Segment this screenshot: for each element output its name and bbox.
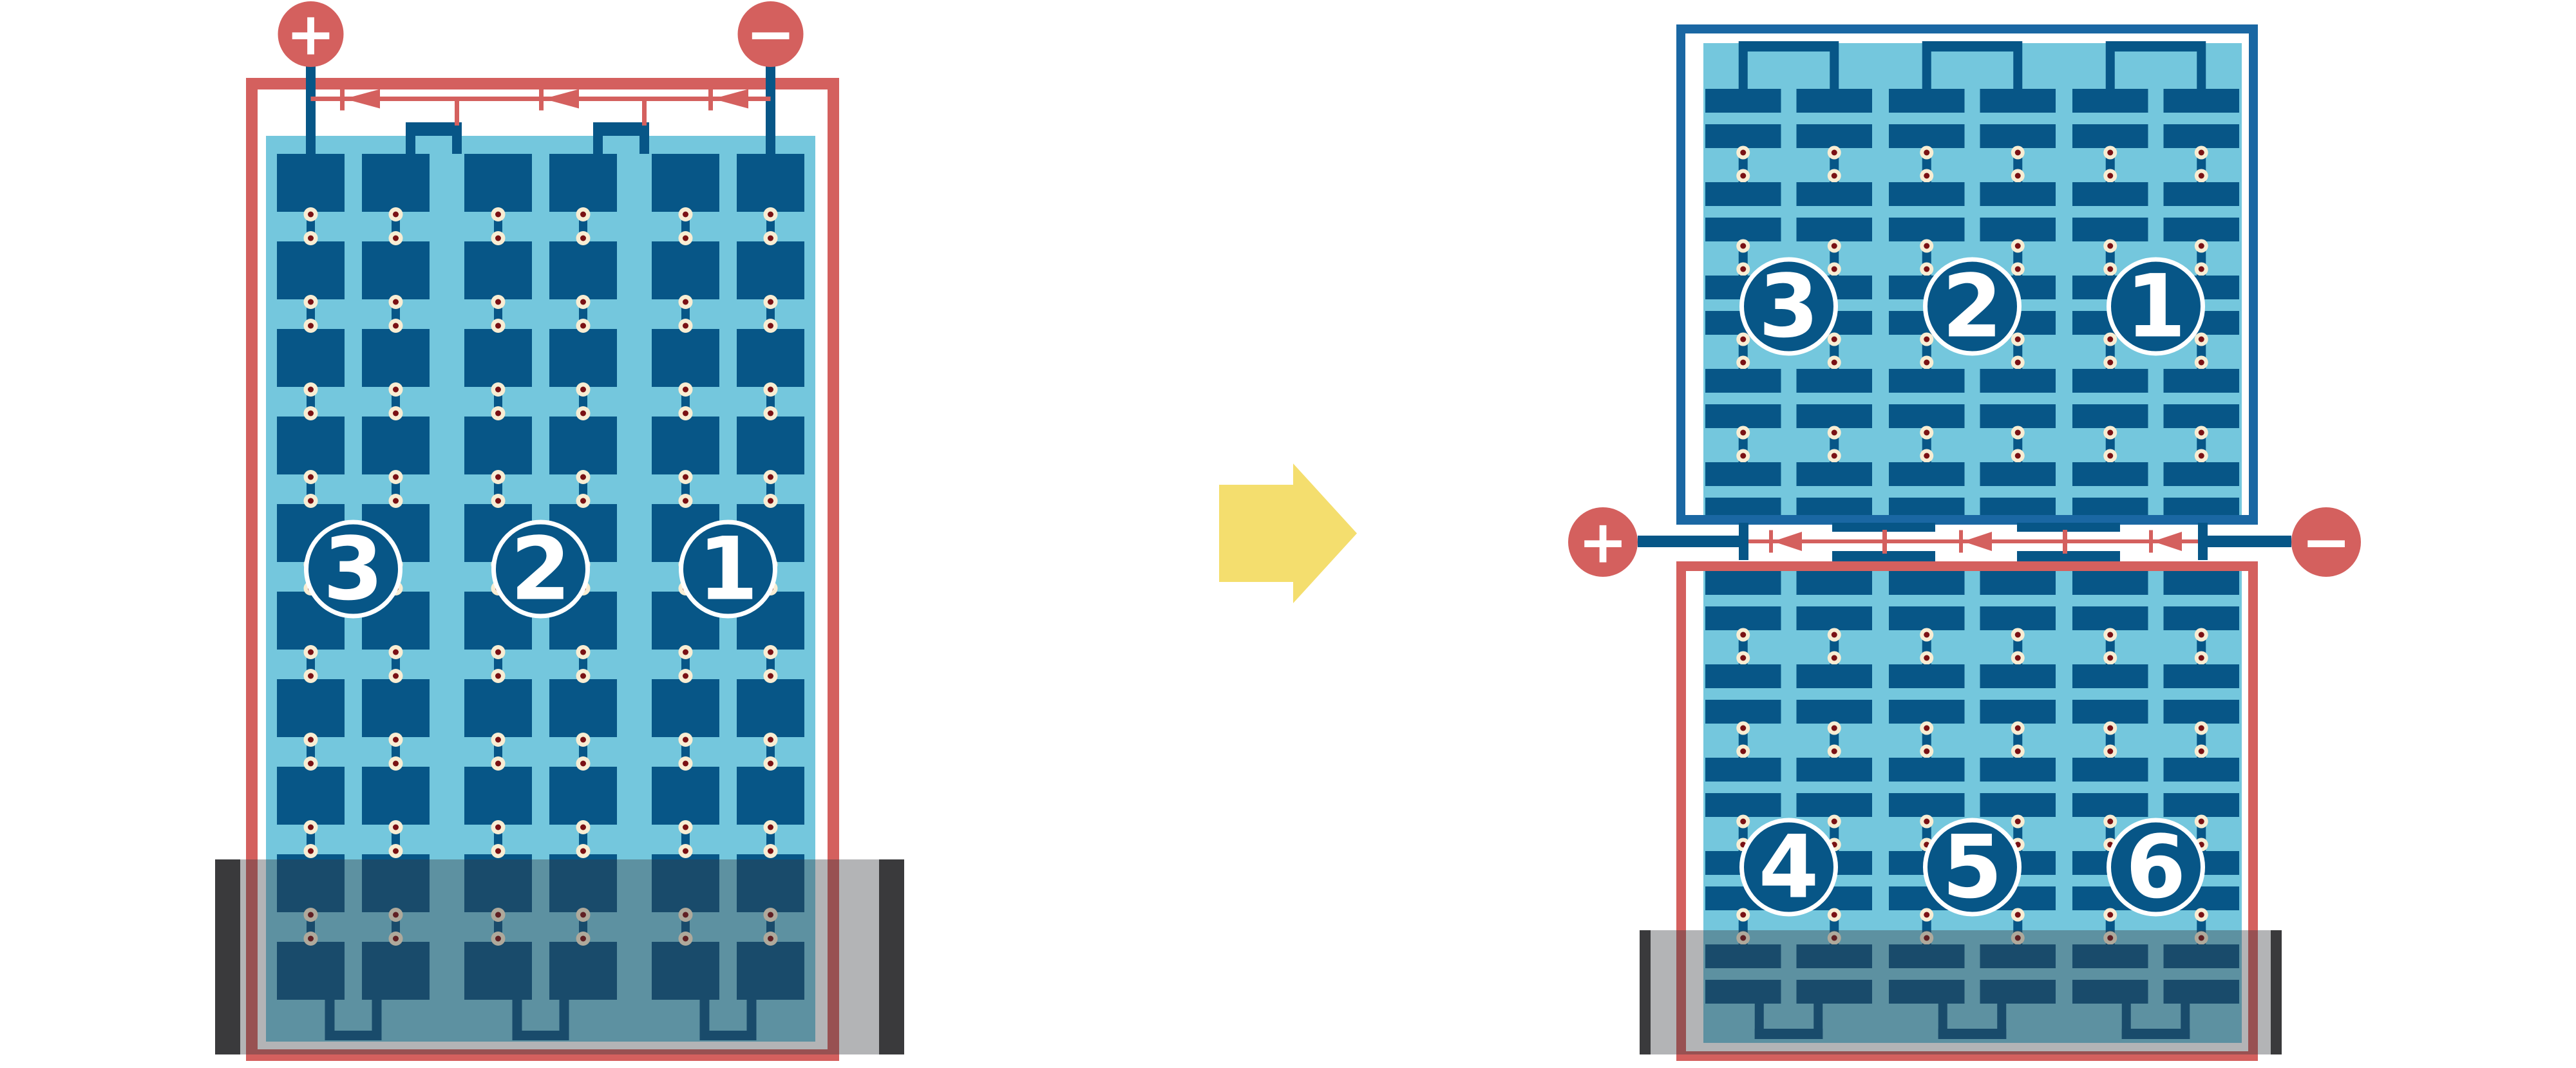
solar-cell-half: [1705, 793, 1781, 817]
solder-dot-core: [1924, 267, 1929, 272]
solar-cell-half: [1705, 124, 1781, 148]
solar-cell-half: [1705, 664, 1781, 688]
solder-dot-core: [2015, 150, 2021, 156]
solder-dot-core: [308, 387, 314, 393]
solar-cell: [464, 329, 532, 387]
bypass-diode: [713, 89, 748, 109]
solder-dot-core: [2107, 430, 2113, 436]
solder-dot-core: [580, 474, 586, 480]
interconnect-tab-top: [2017, 523, 2120, 532]
solar-cell: [277, 417, 345, 474]
diode-cathode-bar: [708, 88, 713, 111]
solar-cell-half: [2164, 571, 2240, 595]
solder-dot-core: [1832, 267, 1837, 272]
substring-label: 4: [1759, 817, 1819, 918]
solar-cell-half: [1797, 664, 1873, 688]
solder-dot-core: [393, 299, 399, 305]
solder-dot-core: [393, 650, 399, 655]
solar-cell: [737, 329, 804, 387]
solder-dot-core: [2107, 655, 2113, 661]
solder-dot-core: [580, 236, 586, 241]
solar-cell-half: [1980, 571, 2056, 595]
shadow-overlay: [1640, 930, 2282, 1054]
solar-cell-half: [2072, 182, 2148, 206]
solar-cell-half: [2164, 404, 2240, 428]
solar-cell: [737, 241, 804, 299]
solder-dot-core: [683, 212, 688, 218]
solder-dot-core: [2107, 726, 2113, 731]
solder-dot-core: [1832, 430, 1837, 436]
solder-dot-core: [1832, 819, 1837, 825]
solder-dot-core: [580, 761, 586, 767]
solder-dot-core: [768, 323, 773, 329]
staple-leg: [2013, 52, 2022, 89]
solder-dot-core: [308, 212, 314, 218]
substring-label: 5: [1942, 817, 2003, 918]
solder-dot-core: [683, 299, 688, 305]
solder-dot-core: [683, 650, 688, 655]
solar-cell: [277, 679, 345, 737]
solar-cell-half: [1797, 462, 1873, 486]
solar-cell-half: [2072, 124, 2148, 148]
substring-label: 3: [323, 519, 384, 620]
solder-dot-core: [495, 673, 501, 679]
solar-cell-half: [1980, 369, 2056, 393]
solar-cell-half: [1980, 404, 2056, 428]
solar-cell-half: [1797, 571, 1873, 595]
solder-dot-core: [393, 737, 399, 743]
solder-dot-core: [495, 236, 501, 241]
solder-dot-core: [308, 323, 314, 329]
negative-terminal-sign: −: [746, 0, 795, 69]
solar-cell: [652, 329, 719, 387]
solder-dot-core: [1924, 749, 1929, 754]
solder-dot-core: [2107, 150, 2113, 156]
solder-dot-core: [580, 387, 586, 393]
solder-dot-core: [495, 761, 501, 767]
solder-dot-core: [2107, 267, 2113, 272]
solder-dot-core: [2199, 430, 2204, 436]
solder-dot-core: [2015, 819, 2021, 825]
solder-dot-core: [2015, 173, 2021, 179]
solder-dot-core: [768, 474, 773, 480]
top-bridge-staple: [2106, 41, 2206, 52]
staple-leg: [639, 122, 649, 154]
solar-cell-half: [1797, 182, 1873, 206]
solar-cell: [464, 767, 532, 825]
solder-dot-core: [495, 825, 501, 830]
solder-dot-core: [1832, 150, 1837, 156]
solder-dot-core: [2199, 150, 2204, 156]
solder-dot-core: [1924, 726, 1929, 731]
solder-dot-core: [2015, 430, 2021, 436]
junction-drop-wire: [642, 97, 647, 126]
solar-cell: [737, 154, 804, 212]
positive-terminal-sign: +: [1578, 508, 1627, 577]
solder-dot-core: [2015, 453, 2021, 459]
solder-dot-core: [393, 825, 399, 830]
solder-dot-core: [2015, 912, 2021, 918]
staple-leg: [1830, 52, 1839, 89]
solar-cell-half: [1889, 462, 1965, 486]
solder-dot-core: [1924, 173, 1929, 179]
solar-cell: [362, 679, 430, 737]
solar-cell-half: [1889, 404, 1965, 428]
solar-cell-half: [1889, 124, 1965, 148]
top-bridge-staple: [1922, 41, 2023, 52]
solder-dot-core: [2199, 749, 2204, 754]
diode-cathode-bar: [340, 88, 345, 111]
solder-dot-core: [393, 498, 399, 504]
top-bridge-staple: [1739, 41, 1839, 52]
solder-dot-core: [2199, 267, 2204, 272]
staple-leg: [1739, 52, 1748, 89]
solar-cell-half: [2164, 758, 2240, 782]
solder-dot-core: [683, 387, 688, 393]
solder-dot-core: [683, 825, 688, 830]
solder-dot-core: [2015, 360, 2021, 366]
bypass-diode: [1773, 532, 1802, 551]
solder-dot-core: [308, 411, 314, 417]
solar-cell: [652, 767, 719, 825]
solar-cell: [277, 154, 345, 212]
solar-cell-half: [2164, 462, 2240, 486]
solar-cell-half: [1797, 124, 1873, 148]
solar-cell-half: [2072, 700, 2148, 724]
negative-terminal-lead: [2208, 536, 2291, 547]
solder-dot-core: [308, 474, 314, 480]
solder-dot-core: [2199, 819, 2204, 825]
solar-cell: [549, 679, 617, 737]
solder-dot-core: [308, 737, 314, 743]
solder-dot-core: [1832, 912, 1837, 918]
solar-cell-half: [1705, 462, 1781, 486]
solar-cell-half: [2164, 606, 2240, 630]
solder-dot-core: [1740, 655, 1746, 661]
diode-cathode-bar: [1959, 530, 1963, 553]
solder-dot-core: [1740, 749, 1746, 754]
solder-dot-core: [2199, 655, 2204, 661]
solder-dot-core: [2015, 337, 2021, 342]
solar-cell: [652, 679, 719, 737]
solder-dot-core: [683, 236, 688, 241]
solder-dot-core: [2107, 453, 2113, 459]
diagram-canvas: +−321321+−456: [0, 0, 2576, 1068]
solder-dot-core: [393, 387, 399, 393]
bypass-diode: [544, 89, 579, 109]
solar-cell-half: [2072, 758, 2148, 782]
solder-dot-core: [2015, 243, 2021, 249]
solder-dot-core: [1924, 632, 1929, 638]
solder-dot-core: [308, 825, 314, 830]
solar-cell-half: [1980, 606, 2056, 630]
solar-cell-half: [1889, 664, 1965, 688]
solar-cell-half: [1797, 369, 1873, 393]
solder-dot-core: [495, 411, 501, 417]
solar-cell-half: [1797, 89, 1873, 113]
solar-cell-half: [1980, 758, 2056, 782]
solar-cell: [737, 767, 804, 825]
solar-cell: [464, 679, 532, 737]
solar-cell: [737, 679, 804, 737]
solar-cell-half: [2072, 369, 2148, 393]
solder-dot-core: [768, 673, 773, 679]
positive-terminal-lead: [306, 64, 316, 154]
right-bottom-module: 456: [1640, 567, 2282, 1056]
solar-cell-half: [2072, 571, 2148, 595]
solder-dot-core: [2015, 632, 2021, 638]
solder-dot-core: [683, 498, 688, 504]
solar-cell-half: [2164, 218, 2240, 241]
solder-dot-core: [768, 236, 773, 241]
solar-cell-half: [2164, 369, 2240, 393]
solder-dot-core: [768, 212, 773, 218]
solder-dot-core: [495, 848, 501, 854]
solar-cell-half: [1980, 793, 2056, 817]
solder-dot-core: [1924, 360, 1929, 366]
diode-cathode-bar: [2149, 530, 2153, 553]
solder-dot-core: [580, 212, 586, 218]
substring-label: 2: [511, 519, 571, 620]
solar-cell: [362, 154, 430, 212]
bus-node-left: [1739, 523, 1748, 560]
solder-dot-core: [2107, 632, 2113, 638]
solder-dot-core: [308, 761, 314, 767]
solder-dot-core: [768, 761, 773, 767]
solar-cell: [464, 417, 532, 474]
solder-dot-core: [1924, 819, 1929, 825]
solder-dot-core: [1740, 150, 1746, 156]
staple-leg: [452, 122, 462, 154]
solder-dot-core: [2199, 360, 2204, 366]
solar-cell-half: [1889, 182, 1965, 206]
solar-cell-half: [1705, 758, 1781, 782]
solder-dot-core: [393, 761, 399, 767]
shadow-overlay: [215, 859, 904, 1054]
solder-dot-core: [580, 825, 586, 830]
solder-dot-core: [2199, 453, 2204, 459]
solder-dot-core: [1832, 749, 1837, 754]
solder-dot-core: [2199, 912, 2204, 918]
solar-cell: [549, 154, 617, 212]
negative-terminal-lead: [766, 64, 775, 154]
solar-cell: [549, 329, 617, 387]
solder-dot-core: [1832, 632, 1837, 638]
solar-cell-half: [2072, 89, 2148, 113]
solar-cell-half: [2164, 793, 2240, 817]
solar-cell-half: [1889, 218, 1965, 241]
solder-dot-core: [495, 650, 501, 655]
bypass-diode: [1963, 532, 1992, 551]
solder-dot-core: [1740, 267, 1746, 272]
solar-cell-half: [1705, 369, 1781, 393]
solder-dot-core: [2107, 243, 2113, 249]
solar-cell: [737, 417, 804, 474]
solder-dot-core: [1832, 337, 1837, 342]
solder-dot-core: [308, 236, 314, 241]
substring-label: 2: [1942, 256, 2003, 357]
solar-cell-half: [2072, 606, 2148, 630]
solar-cell: [362, 241, 430, 299]
solar-cell-half: [1980, 182, 2056, 206]
shadow-cap-right: [879, 859, 904, 1054]
solder-dot-core: [580, 673, 586, 679]
solar-cell-half: [1889, 700, 1965, 724]
staple-leg: [2197, 52, 2206, 89]
positive-terminal-lead: [1638, 536, 1739, 547]
solder-dot-core: [1740, 337, 1746, 342]
solder-dot-core: [393, 474, 399, 480]
solar-cell: [277, 767, 345, 825]
solder-dot-core: [2199, 173, 2204, 179]
solder-dot-core: [683, 848, 688, 854]
solder-dot-core: [1740, 430, 1746, 436]
solar-cell-half: [1797, 606, 1873, 630]
solder-dot-core: [1924, 430, 1929, 436]
solder-dot-core: [2107, 912, 2113, 918]
solder-dot-core: [495, 387, 501, 393]
solder-dot-core: [1740, 243, 1746, 249]
solar-cell: [652, 241, 719, 299]
solder-dot-core: [1924, 655, 1929, 661]
solder-dot-core: [1924, 150, 1929, 156]
solder-dot-core: [1740, 819, 1746, 825]
solder-dot-core: [2015, 267, 2021, 272]
solder-dot-core: [2107, 173, 2113, 179]
solder-dot-core: [1740, 726, 1746, 731]
solder-dot-core: [393, 673, 399, 679]
solar-cell-half: [1889, 793, 1965, 817]
bypass-diode: [345, 89, 380, 109]
substring-label: 6: [2126, 817, 2186, 918]
solder-dot-core: [768, 387, 773, 393]
solar-cell-half: [2164, 124, 2240, 148]
staple-leg: [2106, 52, 2115, 89]
solar-cell: [362, 417, 430, 474]
solar-cell-half: [1980, 89, 2056, 113]
solar-cell: [464, 154, 532, 212]
solder-dot-core: [683, 323, 688, 329]
solder-dot-core: [308, 673, 314, 679]
solder-dot-core: [393, 848, 399, 854]
solar-cell-half: [2164, 700, 2240, 724]
solar-cell-half: [1797, 404, 1873, 428]
solar-cell-half: [1797, 793, 1873, 817]
solder-dot-core: [1832, 360, 1837, 366]
solder-dot-core: [1740, 360, 1746, 366]
solder-dot-core: [580, 848, 586, 854]
solar-cell-half: [2072, 793, 2148, 817]
solder-dot-core: [393, 236, 399, 241]
negative-terminal-sign: −: [2301, 508, 2351, 577]
staple-leg: [1922, 52, 1931, 89]
solar-cell-half: [1980, 462, 2056, 486]
substring-label: 1: [2126, 256, 2186, 357]
solder-dot-core: [393, 212, 399, 218]
solder-dot-core: [2199, 726, 2204, 731]
solder-dot-core: [768, 825, 773, 830]
solar-cell: [549, 417, 617, 474]
solder-dot-core: [308, 299, 314, 305]
solder-dot-core: [393, 323, 399, 329]
diode-cathode-bar: [1769, 530, 1773, 553]
solder-dot-core: [1832, 655, 1837, 661]
solar-cell-half: [1705, 218, 1781, 241]
solder-dot-core: [768, 411, 773, 417]
solar-cell-half: [1980, 124, 2056, 148]
solder-dot-core: [580, 323, 586, 329]
positive-terminal-sign: +: [286, 0, 336, 69]
solder-dot-core: [1740, 453, 1746, 459]
solar-cell-half: [1797, 758, 1873, 782]
bypass-diode: [2153, 532, 2182, 551]
solder-dot-core: [1832, 173, 1837, 179]
solar-cell: [362, 767, 430, 825]
solder-dot-core: [2199, 632, 2204, 638]
solder-dot-core: [1740, 173, 1746, 179]
solder-dot-core: [308, 650, 314, 655]
solar-cell: [464, 241, 532, 299]
solder-dot-core: [768, 299, 773, 305]
solar-cell-half: [1889, 571, 1965, 595]
solder-dot-core: [495, 323, 501, 329]
solder-dot-core: [768, 848, 773, 854]
solar-cell-half: [1889, 369, 1965, 393]
solar-cell: [277, 241, 345, 299]
solar-cell: [362, 329, 430, 387]
solder-dot-core: [1924, 337, 1929, 342]
solder-dot-core: [683, 761, 688, 767]
solder-dot-core: [2199, 337, 2204, 342]
solder-dot-core: [308, 848, 314, 854]
solar-cell-half: [2072, 404, 2148, 428]
solder-dot-core: [1832, 453, 1837, 459]
solder-dot-core: [1832, 726, 1837, 731]
solar-cell-half: [1705, 89, 1781, 113]
solder-dot-core: [495, 212, 501, 218]
solder-dot-core: [2107, 749, 2113, 754]
staple-leg: [593, 122, 603, 154]
solar-cell-half: [2164, 182, 2240, 206]
solar-cell: [277, 329, 345, 387]
solder-dot-core: [308, 498, 314, 504]
solar-cell-half: [1980, 218, 2056, 241]
solar-cell-half: [1980, 700, 2056, 724]
solar-cell: [652, 154, 719, 212]
shadow-cap-left: [1640, 930, 1651, 1054]
solar-cell-half: [2164, 664, 2240, 688]
solar-cell-half: [1889, 89, 1965, 113]
bus-node-right: [2198, 523, 2208, 560]
solar-cell-half: [1705, 404, 1781, 428]
solder-dot-core: [683, 673, 688, 679]
solar-cell: [549, 241, 617, 299]
solder-dot-core: [768, 737, 773, 743]
transition-arrow: [1219, 464, 1357, 603]
left-module: +−321: [215, 0, 904, 1055]
solder-dot-core: [1740, 632, 1746, 638]
solar-cell: [549, 767, 617, 825]
solar-cell-half: [2072, 462, 2148, 486]
solder-dot-core: [393, 411, 399, 417]
solder-dot-core: [1924, 912, 1929, 918]
solder-dot-core: [1832, 243, 1837, 249]
solar-cell-half: [2072, 664, 2148, 688]
solder-dot-core: [2015, 655, 2021, 661]
solar-cell-half: [1889, 758, 1965, 782]
solder-dot-core: [495, 498, 501, 504]
solar-cell-half: [1797, 700, 1873, 724]
